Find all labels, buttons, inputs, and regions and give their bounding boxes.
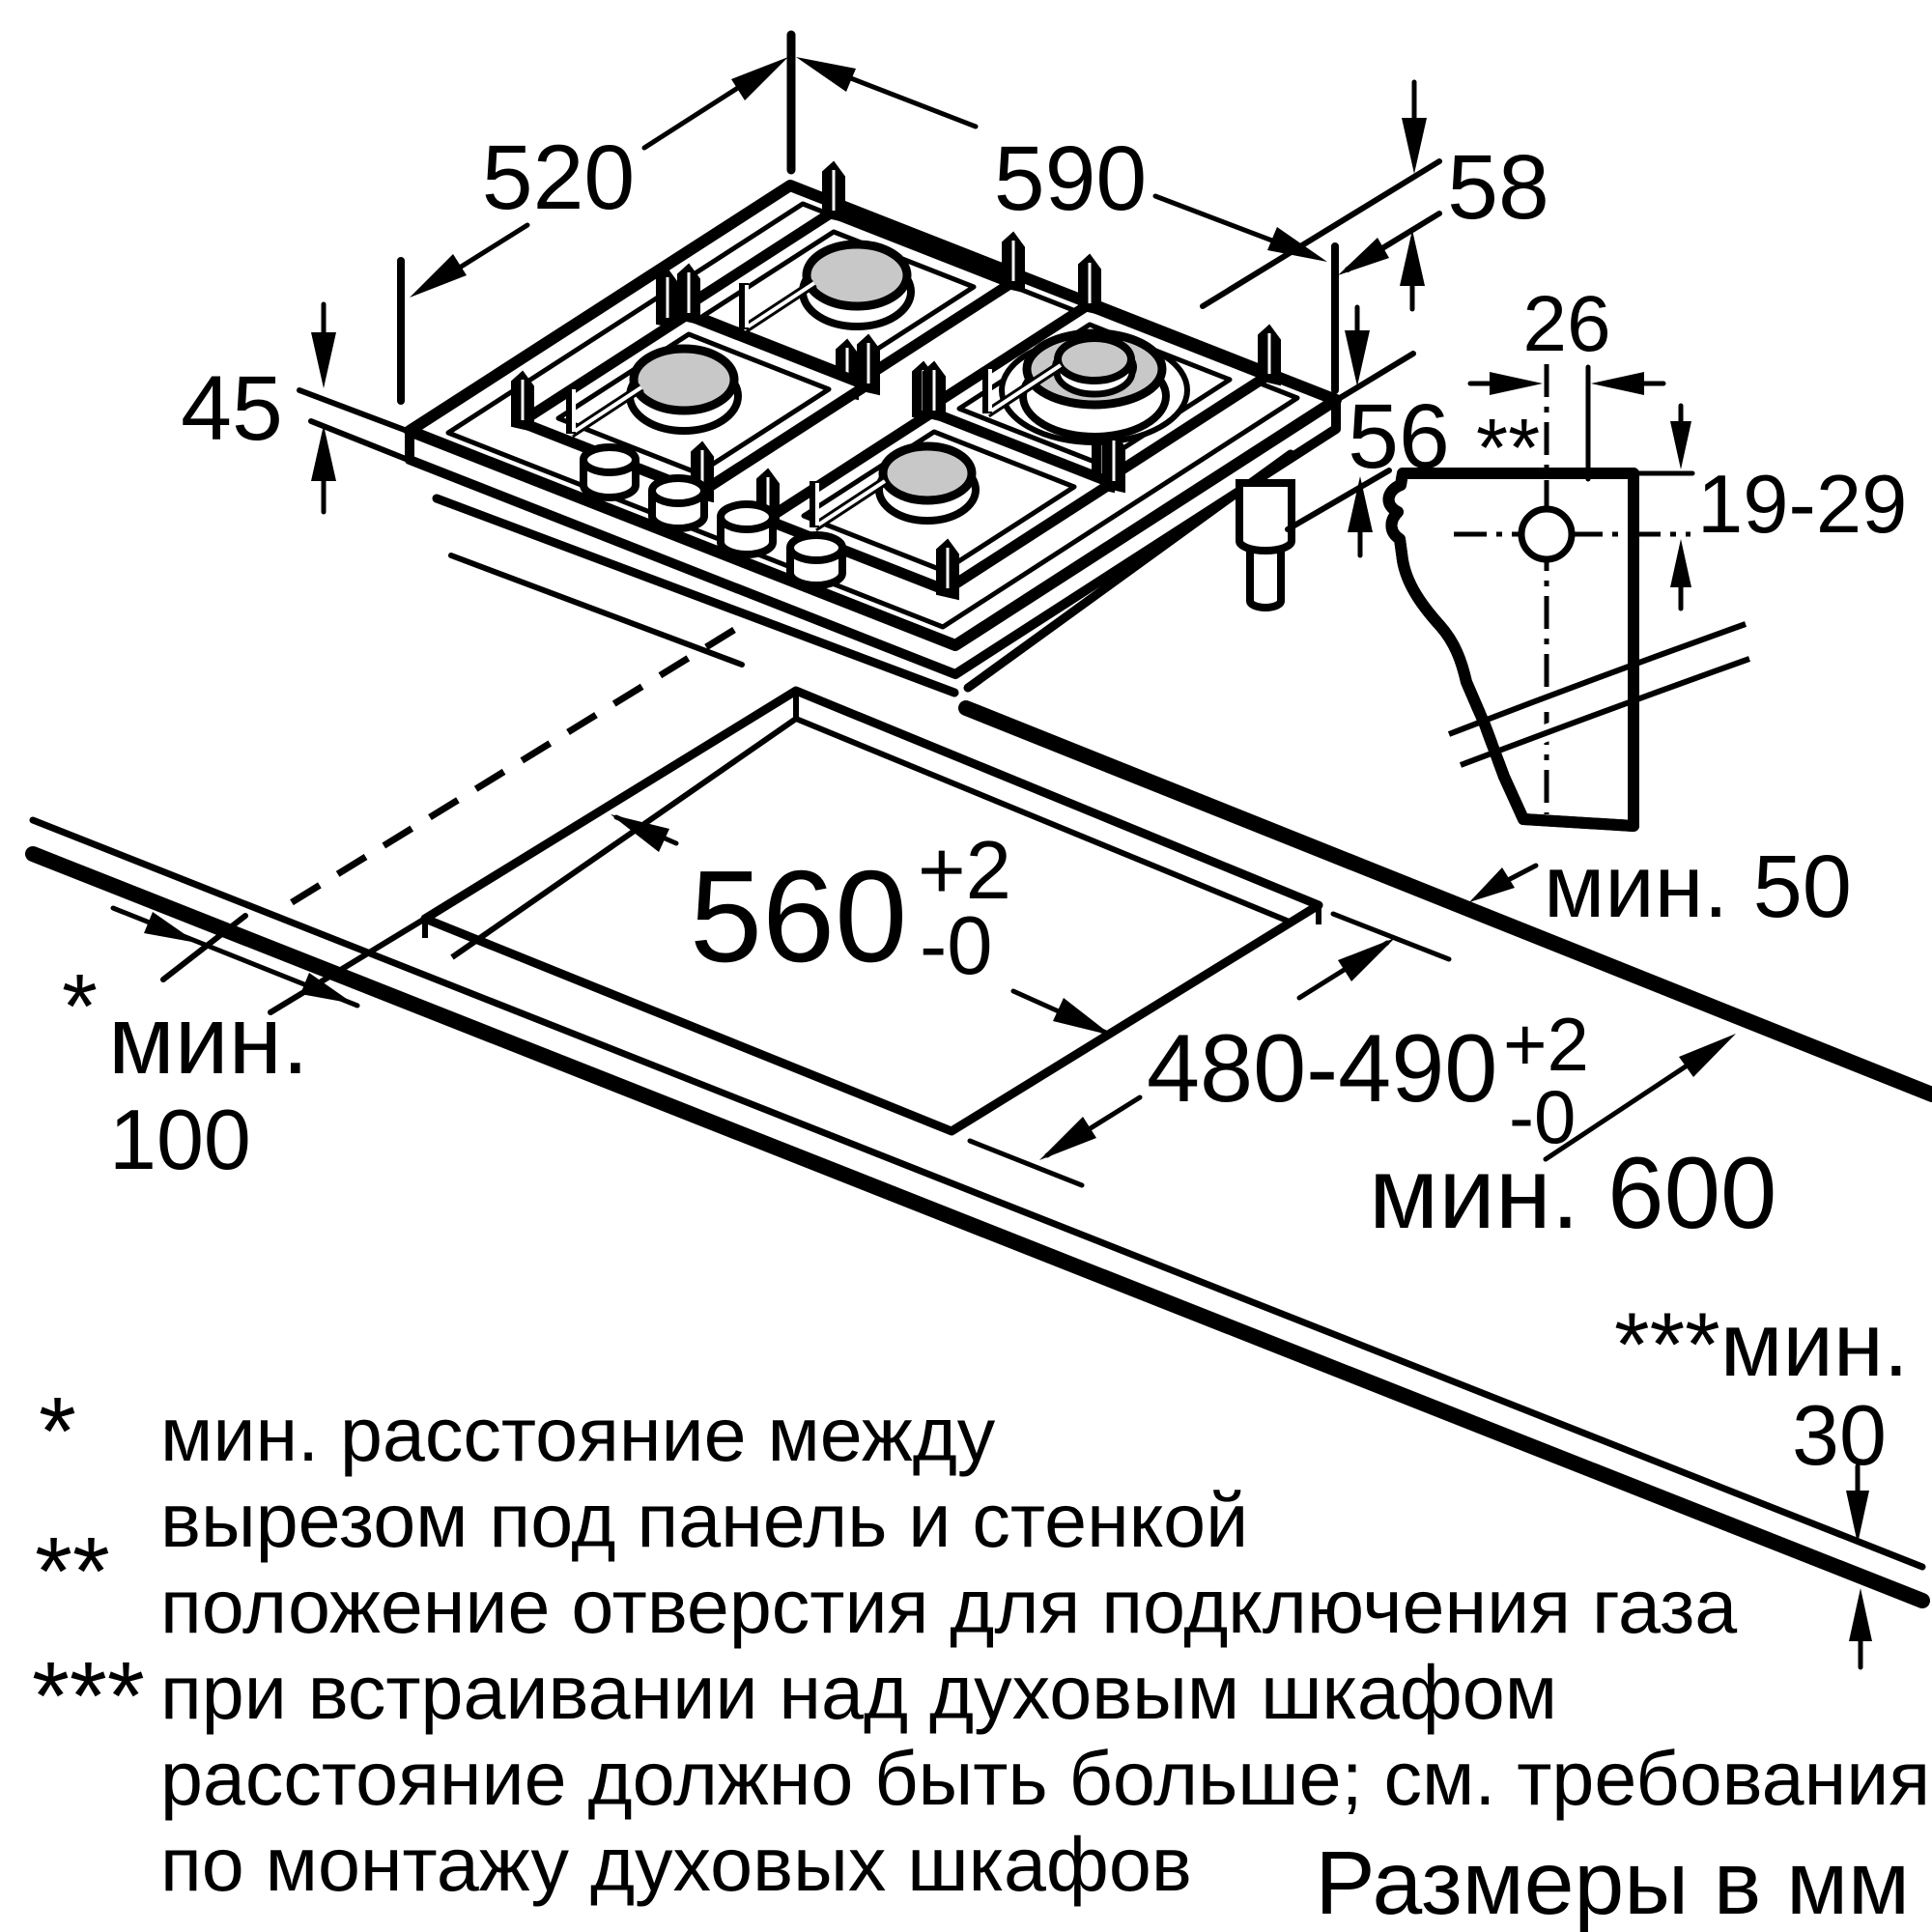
svg-text:-0: -0 bbox=[920, 900, 993, 992]
svg-text:мин. расстояние между: мин. расстояние между bbox=[160, 1391, 996, 1477]
svg-text:560: 560 bbox=[690, 843, 907, 989]
svg-text:*: * bbox=[62, 955, 98, 1058]
svg-text:вырезом под панель и стенкой: вырезом под панель и стенкой bbox=[160, 1477, 1248, 1563]
svg-text:*: * bbox=[39, 1378, 76, 1486]
svg-text:58: 58 bbox=[1447, 136, 1549, 239]
svg-text:520: 520 bbox=[482, 127, 636, 229]
svg-text:***: *** bbox=[32, 1642, 145, 1750]
svg-text:**: ** bbox=[35, 1518, 110, 1626]
svg-text:мин. 600: мин. 600 bbox=[1369, 1137, 1776, 1250]
svg-text:Размеры в мм: Размеры в мм bbox=[1316, 1833, 1910, 1932]
svg-text:по монтажу духовых шкафов: по монтажу духовых шкафов bbox=[160, 1821, 1192, 1907]
svg-text:при встраивании над духовым шк: при встраивании над духовым шкафом bbox=[160, 1649, 1557, 1735]
svg-text:56: 56 bbox=[1348, 385, 1450, 488]
svg-text:расстояние должно быть больше;: расстояние должно быть больше; см. требо… bbox=[160, 1735, 1930, 1821]
svg-text:45: 45 bbox=[181, 357, 283, 460]
svg-text:***мин.: ***мин. bbox=[1614, 1293, 1909, 1395]
svg-text:480-490: 480-490 bbox=[1147, 1014, 1497, 1122]
svg-text:100: 100 bbox=[109, 1092, 251, 1187]
svg-text:590: 590 bbox=[994, 128, 1148, 230]
svg-text:мин.: мин. bbox=[108, 986, 309, 1094]
svg-text:26: 26 bbox=[1522, 280, 1610, 368]
svg-text:мин. 50: мин. 50 bbox=[1544, 838, 1852, 936]
svg-text:30: 30 bbox=[1792, 1387, 1887, 1483]
svg-text:**: ** bbox=[1476, 403, 1540, 495]
svg-text:19-29: 19-29 bbox=[1697, 459, 1907, 551]
svg-text:положение отверстия для подклю: положение отверстия для подключения газа bbox=[160, 1563, 1737, 1649]
